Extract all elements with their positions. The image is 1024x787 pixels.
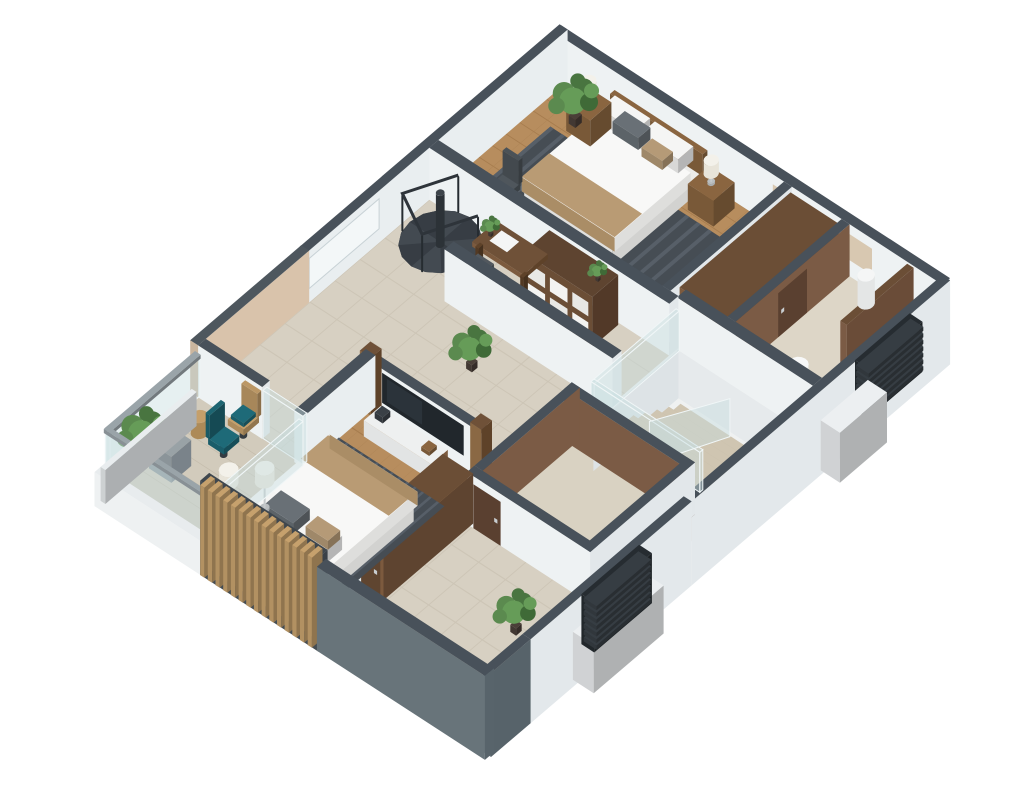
floor-plan-svg: [0, 0, 1024, 787]
floor-plan-image: [0, 0, 1024, 787]
pedestal-basin: [857, 268, 875, 309]
